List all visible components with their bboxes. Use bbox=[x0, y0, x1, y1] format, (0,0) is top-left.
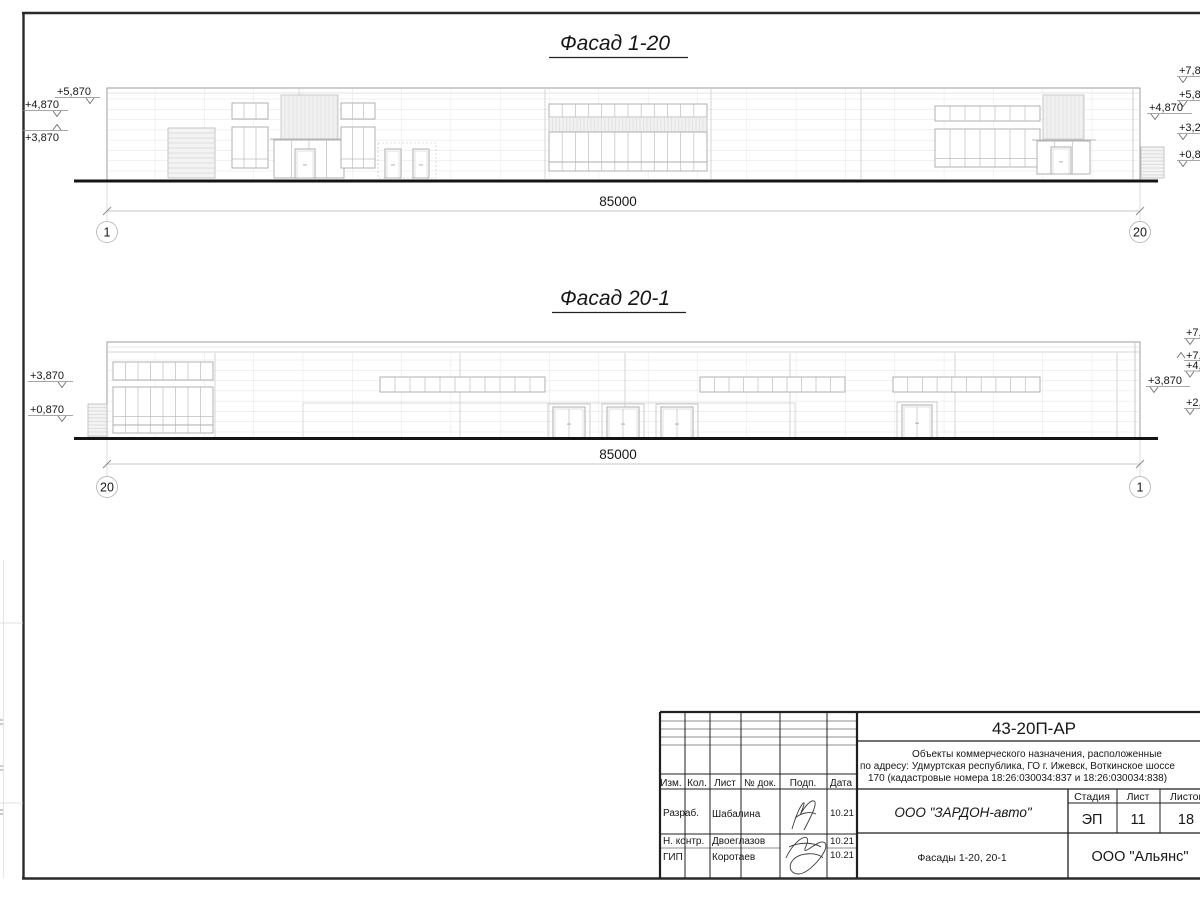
sheet-code: 43-20П-АР bbox=[992, 719, 1076, 738]
elevation-value: +5,870 bbox=[57, 86, 91, 98]
window-frame bbox=[341, 103, 375, 119]
margin-stamp-strip bbox=[0, 560, 23, 878]
project-description-line: по адресу: Удмуртская республика, ГО г. … bbox=[860, 760, 1175, 772]
stage-label: Стадия bbox=[1074, 791, 1110, 803]
door bbox=[385, 149, 401, 178]
signer-date: 10.21 bbox=[830, 808, 854, 819]
louver-panel bbox=[281, 95, 338, 139]
contractor-name: ООО "Альянс" bbox=[1092, 849, 1189, 865]
signer-date: 10.21 bbox=[830, 836, 854, 847]
level-symbol bbox=[1186, 372, 1194, 378]
column-header: Лист bbox=[714, 778, 736, 789]
signer-role: ГИП bbox=[663, 852, 683, 863]
elevation-value: +3,870 bbox=[25, 132, 59, 144]
level-symbol bbox=[1150, 387, 1158, 393]
signer-name: Коротаев bbox=[712, 852, 755, 863]
column-header: Кол. bbox=[687, 778, 707, 789]
level-symbol bbox=[1186, 339, 1194, 345]
sheet-label: Лист bbox=[1127, 791, 1150, 803]
louver-panel bbox=[1043, 95, 1084, 139]
facade2-drawing: +3,870+0,870+7,8+7,+4,8+3,870+2,1 bbox=[28, 327, 1200, 438]
signer-name: Шабалина bbox=[712, 808, 761, 820]
signer-role: Разраб. bbox=[663, 807, 699, 819]
stage-value: ЭП bbox=[1082, 812, 1103, 828]
door bbox=[413, 149, 429, 178]
signer-name: Двоеглазов bbox=[712, 836, 765, 847]
level-symbol bbox=[1177, 353, 1185, 359]
axis-number: 1 bbox=[1137, 481, 1144, 495]
level-symbol bbox=[58, 416, 66, 422]
level-symbol bbox=[1179, 77, 1187, 83]
window-frame bbox=[935, 129, 1040, 167]
elevation-value: +3,27 bbox=[1179, 122, 1200, 134]
total-sheets-label: Листов bbox=[1170, 791, 1200, 803]
axis-number: 20 bbox=[100, 481, 114, 495]
project-description-line: 170 (кадастровые номера 18:26:030034:837… bbox=[868, 773, 1167, 784]
elevation-value: +7,87 bbox=[1179, 65, 1200, 77]
facade1-title: Фасад 1-20 bbox=[560, 32, 670, 55]
axis-number: 20 bbox=[1133, 226, 1147, 240]
signer-role: Н. контр. bbox=[663, 836, 704, 847]
column-header: Изм. bbox=[660, 778, 681, 789]
facade2-title: Фасад 20-1 bbox=[560, 287, 670, 310]
facade1-dimension: 85000 bbox=[103, 183, 1144, 222]
signature bbox=[786, 837, 826, 874]
elevation-value: +4,870 bbox=[1149, 102, 1183, 114]
level-symbol bbox=[1179, 134, 1187, 140]
level-symbol bbox=[53, 111, 61, 117]
level-symbol bbox=[53, 125, 61, 131]
window-frame bbox=[380, 377, 545, 392]
column-header: Дата bbox=[830, 778, 853, 789]
elevation-value: +3,870 bbox=[1148, 375, 1182, 387]
elevation-value: +0,870 bbox=[30, 404, 64, 416]
facade2-axis-right: 1 bbox=[1130, 477, 1151, 498]
sheet-number: 11 bbox=[1130, 812, 1145, 828]
door bbox=[1051, 147, 1071, 174]
signer-date: 10.21 bbox=[830, 850, 854, 861]
level-symbol bbox=[58, 382, 66, 388]
level-symbol bbox=[86, 98, 94, 104]
louver-panel bbox=[549, 117, 707, 132]
facade1-axis-left: 1 bbox=[97, 222, 118, 243]
margin-text-stub bbox=[0, 720, 3, 814]
column-header: Подп. bbox=[790, 778, 817, 789]
project-description-line: Объекты коммерческого назначения, распол… bbox=[912, 748, 1162, 760]
facade1-axis-right: 20 bbox=[1130, 222, 1151, 243]
drawing-canvas: Фасад 1-20 +5,870+4,870+3,870+7,87+5,87+… bbox=[0, 0, 1200, 900]
axis-number: 1 bbox=[104, 226, 111, 240]
facade2-dimension: 85000 bbox=[103, 440, 1144, 476]
level-symbol bbox=[1179, 161, 1187, 167]
signature bbox=[792, 801, 816, 830]
louver-panel bbox=[1141, 147, 1164, 178]
elevation-value: +5,87 bbox=[1179, 89, 1200, 101]
elevation-value: +0,870 bbox=[1179, 149, 1200, 161]
level-symbol bbox=[1186, 409, 1194, 415]
elevation-value: +2,1 bbox=[1186, 397, 1200, 409]
dimension-value: 85000 bbox=[599, 447, 637, 462]
title-block: 43-20П-АР Объекты коммерческого назначен… bbox=[660, 712, 1200, 878]
door bbox=[295, 149, 315, 178]
facade1-drawing: +5,870+4,870+3,870+7,87+5,87+4,870+3,27+… bbox=[23, 65, 1200, 180]
elevation-value: +4,8 bbox=[1186, 360, 1200, 372]
dimension-value: 85000 bbox=[599, 194, 637, 209]
window-frame bbox=[232, 127, 268, 168]
elevation-value: +4,870 bbox=[25, 99, 59, 111]
total-sheets: 18 bbox=[1178, 812, 1194, 828]
window-frame bbox=[232, 103, 268, 119]
elevation-value: +3,870 bbox=[30, 370, 64, 382]
column-header: № док. bbox=[744, 778, 776, 789]
level-symbol bbox=[1151, 114, 1159, 120]
window-frame bbox=[341, 127, 375, 168]
elevation-value: +7,8 bbox=[1186, 327, 1200, 339]
facade2-axis-left: 20 bbox=[97, 477, 118, 498]
drawing-subject: Фасады 1-20, 20-1 bbox=[917, 852, 1007, 864]
window-frame bbox=[935, 106, 1040, 121]
drawing-sheet: Фасад 1-20 +5,870+4,870+3,870+7,87+5,87+… bbox=[0, 0, 1200, 900]
client-name: ООО "ЗАРДОН-авто" bbox=[894, 805, 1033, 820]
